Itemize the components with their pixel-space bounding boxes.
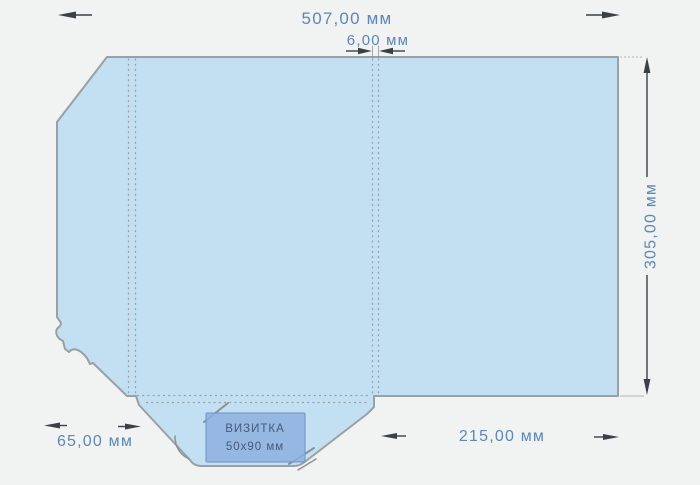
business-card-label: ВИЗИТКА bbox=[225, 423, 285, 435]
dimension-width: 507,00 мм bbox=[58, 9, 620, 28]
dieline-canvas: ВИЗИТКА 50x90 мм 507,00 мм 6,00 мм bbox=[0, 0, 700, 485]
dim-height-label: 305,00 мм bbox=[643, 183, 660, 269]
width-arrow-left-icon bbox=[58, 12, 76, 19]
business-card-size: 50x90 мм bbox=[226, 441, 284, 453]
flap-arrow-left-icon bbox=[44, 423, 60, 429]
dim-spine-label: 6,00 мм bbox=[347, 32, 409, 49]
dim-panel-label: 215,00 мм bbox=[459, 428, 545, 445]
panel-arrow-right-icon bbox=[603, 434, 619, 440]
flap-arrow-right-icon bbox=[125, 424, 141, 430]
height-arrow-down-icon bbox=[644, 379, 651, 395]
dimension-height: 305,00 мм bbox=[620, 57, 660, 396]
folder-dieline-preview: ВИЗИТКА 50x90 мм 507,00 мм 6,00 мм bbox=[0, 0, 700, 485]
height-arrow-up-icon bbox=[644, 57, 651, 73]
width-arrow-right-icon bbox=[602, 12, 620, 19]
dim-width-label: 507,00 мм bbox=[302, 9, 393, 28]
dim-flap-label: 65,00 мм bbox=[57, 433, 133, 450]
business-card-rect bbox=[206, 413, 305, 462]
dimension-flap: 65,00 мм bbox=[44, 423, 141, 451]
business-card-slot: ВИЗИТКА 50x90 мм bbox=[206, 413, 305, 462]
dimension-spine: 6,00 мм bbox=[346, 32, 409, 57]
dimension-panel: 215,00 мм bbox=[381, 428, 619, 445]
folder-outline bbox=[56, 57, 618, 466]
panel-arrow-left-icon bbox=[381, 433, 397, 439]
